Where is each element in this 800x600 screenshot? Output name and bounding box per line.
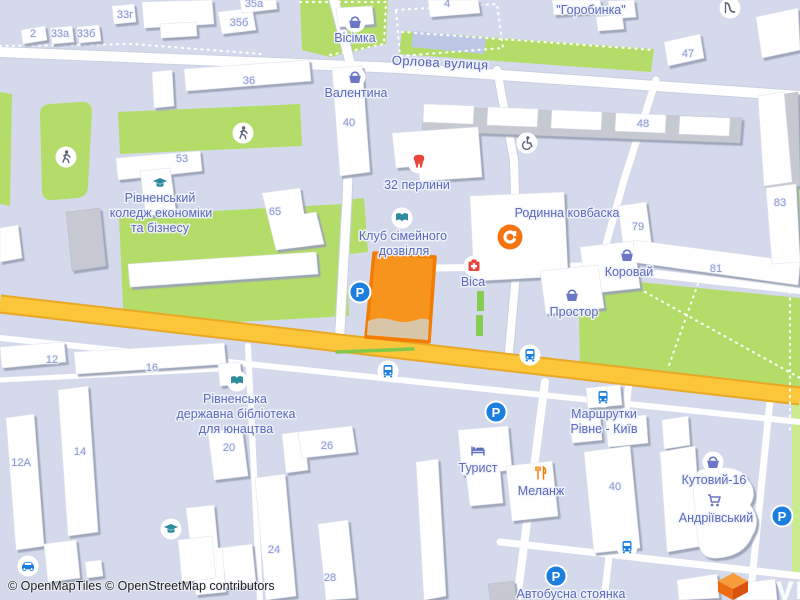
graduation-cap-icon[interactable] — [161, 519, 182, 540]
building-number: 33б — [77, 28, 96, 40]
poi-label: Вісімка — [334, 31, 375, 45]
poi-label: 32 перлини — [384, 178, 450, 192]
poi-label: Меланж — [518, 484, 565, 498]
poi-label: та бізнесу — [131, 221, 190, 235]
building-number: 28 — [324, 572, 336, 584]
building-number: 14 — [74, 446, 86, 458]
poi-label: Рівненський — [125, 191, 196, 205]
building-number: 79 — [632, 221, 644, 233]
poi-horobynka[interactable]: "Горобинка" — [556, 3, 625, 17]
poi-label: Рівне - Київ — [570, 422, 637, 436]
pedestrian-icon[interactable] — [233, 123, 254, 144]
building-number: 12 — [46, 354, 58, 366]
poi-label: Турист — [459, 461, 498, 475]
building-number: 4 — [444, 0, 450, 10]
poi-label: Родинна ковбаска — [515, 206, 620, 220]
selected-building[interactable] — [366, 253, 435, 342]
poi-label: Валентина — [324, 86, 387, 100]
shop-basket-icon[interactable] — [617, 245, 638, 266]
svg-text:P: P — [492, 405, 501, 420]
building-number: 83 — [774, 197, 786, 209]
shopping-cart-icon[interactable] — [704, 490, 725, 511]
building-number: 33а — [51, 28, 70, 40]
poi-label: державна бібліотека — [177, 407, 296, 421]
shop-basket-icon[interactable] — [562, 285, 583, 306]
library-book-icon[interactable] — [227, 371, 248, 392]
building-number: 35б — [230, 17, 249, 29]
brand-logo-icon[interactable] — [498, 225, 523, 250]
wheelchair-icon[interactable] — [517, 133, 538, 154]
building-number: 16 — [146, 362, 158, 374]
building-number: 2 — [30, 28, 36, 40]
svg-text:P: P — [552, 569, 561, 584]
dentist-tooth-icon[interactable] — [408, 151, 431, 174]
bus-stop-icon[interactable] — [593, 387, 614, 408]
building-number: 35а — [245, 0, 264, 10]
poi-label: дозвілля — [379, 244, 430, 258]
building-number: 81 — [710, 263, 722, 275]
poi-label: коледж економіки — [110, 206, 213, 220]
building-number: 47 — [682, 48, 694, 60]
poi-label: Андріївський — [679, 511, 753, 525]
parking-icon[interactable]: P — [350, 282, 371, 303]
poi-label: Автобусна стоянка — [517, 587, 626, 600]
building-number: 33г — [117, 9, 133, 21]
poi-label: для юнацтва — [199, 422, 273, 436]
parking-icon[interactable]: P — [486, 402, 507, 423]
building-number: 40 — [609, 481, 621, 493]
pedestrian-icon[interactable] — [56, 147, 77, 168]
parking-icon[interactable]: P — [772, 506, 793, 527]
shop-basket-icon[interactable] — [703, 452, 724, 473]
building-number: 12А — [11, 457, 31, 469]
poi-label: Простор — [550, 305, 599, 319]
library-book-icon[interactable] — [392, 208, 413, 229]
building-number: 53 — [176, 153, 188, 165]
restaurant-cutlery-icon[interactable] — [531, 463, 552, 484]
lun-logo-text: лун — [754, 569, 800, 600]
building-number: 36 — [243, 75, 255, 87]
poi-label: Віса — [461, 275, 485, 289]
car-icon[interactable] — [18, 556, 39, 577]
building-number: 48 — [637, 118, 649, 130]
shop-basket-icon[interactable] — [345, 12, 366, 33]
poi-label: Кутовий-16 — [682, 473, 747, 487]
building-number: 26 — [321, 440, 333, 452]
building-number: 40 — [343, 117, 355, 129]
poi-label: Коровай — [605, 265, 654, 279]
building-number: 24 — [268, 544, 280, 556]
building-number: 20 — [223, 442, 235, 454]
pharmacy-cross-icon[interactable] — [464, 256, 485, 277]
poi-label: Маршрутки — [571, 407, 637, 421]
building-number: 65 — [269, 206, 281, 218]
bus-stop-icon[interactable] — [378, 361, 399, 382]
svg-text:P: P — [356, 285, 365, 300]
parking-icon[interactable]: P — [546, 566, 567, 587]
poi-label: Клуб сімейного — [359, 229, 447, 243]
bus-stop-icon[interactable] — [520, 345, 541, 366]
poi-label: "Горобинка" — [556, 3, 625, 17]
hotel-bed-icon[interactable] — [468, 441, 489, 462]
shop-basket-icon[interactable] — [345, 67, 366, 88]
attribution: © OpenMapTiles © OpenStreetMap contribut… — [8, 579, 275, 593]
map-canvas[interactable]: 233а33б33г35а35б436404748536579818312161… — [0, 0, 800, 600]
bus-stop-icon[interactable] — [617, 537, 638, 558]
svg-text:P: P — [778, 509, 787, 524]
poi-label: Рівненська — [203, 392, 267, 406]
